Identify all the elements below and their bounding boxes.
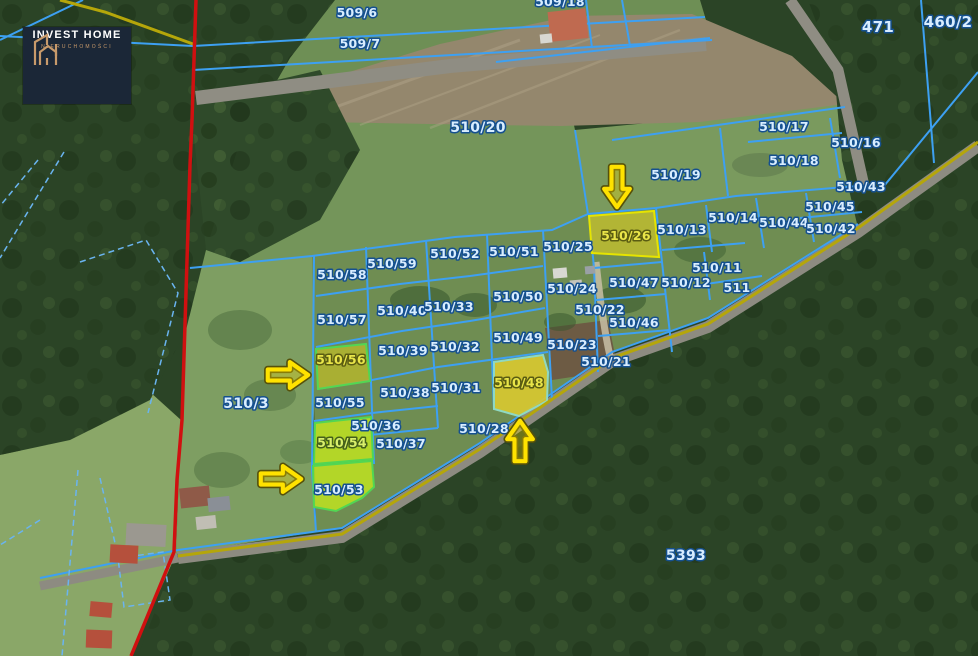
parcel-label: 510/39 (378, 343, 428, 358)
parcel-label: 510/37 (376, 436, 426, 451)
parcel-label: 509/6 (337, 5, 378, 20)
parcel-label: 510/42 (806, 221, 856, 236)
parcel-label: 510/45 (805, 199, 855, 214)
parcel-label: 510/18 (769, 153, 819, 168)
parcel-label: 510/50 (493, 289, 543, 304)
parcel-label: 510/14 (708, 210, 758, 225)
parcel-label: 510/40 (377, 303, 427, 318)
aerial-map-view[interactable]: 509/6509/7509/18471460/2510/20510/17510/… (0, 0, 978, 656)
terrain (0, 0, 978, 656)
parcel-label: 510/43 (836, 179, 886, 194)
parcel-label: 510/23 (547, 337, 597, 352)
parcel-label: 509/18 (535, 0, 585, 9)
parcel-label: 511 (724, 280, 751, 295)
parcel-label: 510/53 (314, 482, 364, 497)
parcel-label: 510/44 (759, 215, 809, 230)
parcel-label: 460/2 (924, 13, 973, 31)
parcel-label: 510/28 (459, 421, 509, 436)
map-canvas: 509/6509/7509/18471460/2510/20510/17510/… (0, 0, 978, 656)
parcel-label: 510/24 (547, 281, 597, 296)
parcel-label: 510/51 (489, 244, 539, 259)
parcel-label: 510/3 (223, 396, 269, 412)
parcel-label: 471 (862, 18, 894, 36)
parcel-label: 510/56 (316, 352, 366, 367)
parcel-label: 510/52 (430, 246, 480, 261)
parcel-label: 510/59 (367, 256, 417, 271)
parcel-label: 510/57 (317, 312, 367, 327)
parcel-label: 510/58 (317, 267, 367, 282)
parcel-label: 510/49 (493, 330, 543, 345)
parcel-label: 5393 (666, 548, 706, 564)
parcel-label: 510/20 (450, 120, 506, 136)
parcel-label: 510/11 (692, 260, 742, 275)
invest-home-logo: INVEST HOME NIERUCHOMOŚCI (23, 27, 131, 104)
parcel-label: 510/26 (601, 228, 651, 243)
parcel-label: 510/31 (431, 380, 481, 395)
parcel-label: 510/21 (581, 354, 631, 369)
parcel-label: 510/33 (424, 299, 474, 314)
buildings-icon (23, 32, 67, 66)
parcel-label: 510/48 (494, 375, 544, 390)
parcel-label: 510/47 (609, 275, 659, 290)
parcel-label: 510/54 (317, 435, 367, 450)
parcel-label: 510/25 (543, 239, 593, 254)
parcel-label: 510/13 (657, 222, 707, 237)
parcel-label: 510/16 (831, 135, 881, 150)
parcel-label: 510/46 (609, 315, 659, 330)
parcel-label: 510/12 (661, 275, 711, 290)
parcel-label: 509/7 (340, 36, 381, 51)
parcel-label: 510/36 (351, 418, 401, 433)
parcel-label: 510/38 (380, 385, 430, 400)
parcel-label: 510/19 (651, 167, 701, 182)
parcel-label: 510/32 (430, 339, 480, 354)
parcel-label: 510/17 (759, 119, 809, 134)
parcel-label: 510/55 (315, 395, 365, 410)
